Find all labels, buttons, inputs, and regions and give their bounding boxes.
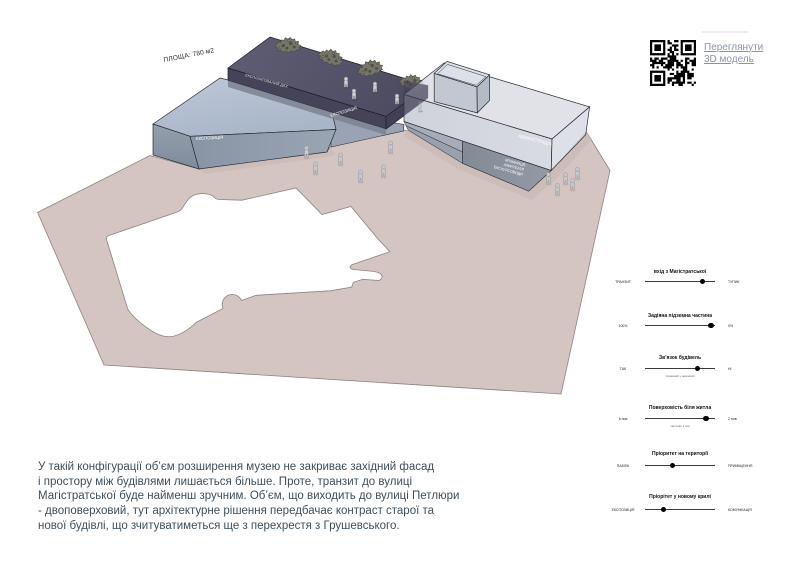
svg-text:ПЛОЩА: 780 м2: ПЛОЩА: 780 м2 — [163, 47, 215, 64]
